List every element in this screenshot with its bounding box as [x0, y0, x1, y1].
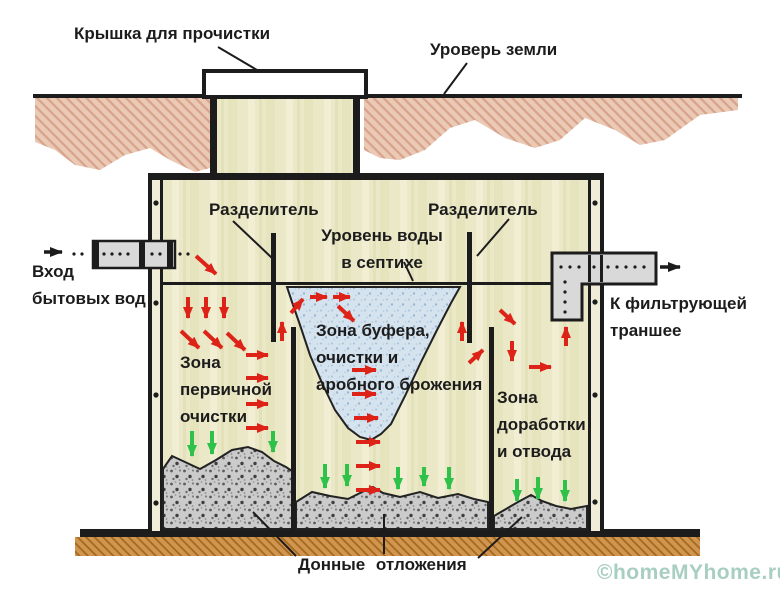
bottom-sediment-label: Донные отложения	[298, 551, 467, 578]
divider-label-left: Разделитель	[209, 196, 319, 223]
tank-right-wall-core	[591, 175, 600, 531]
lid-cover-label: Крышка для прочистки	[74, 20, 270, 47]
divider-baffle-left	[271, 233, 276, 342]
tank-top-wall	[148, 173, 604, 180]
inlet-label: Вход бытовых вод	[32, 258, 146, 312]
chamber-partition-right	[489, 327, 494, 530]
soil-layer-right	[364, 97, 738, 160]
shaft-left-wall	[210, 95, 217, 177]
outlet-label: К фильтрующей траншее	[610, 290, 747, 344]
septic-tank-diagram: Крышка для прочистки Уроверь земли Разде…	[0, 0, 780, 600]
chamber-partition-left	[291, 327, 296, 530]
tank-left-wall-core	[152, 175, 160, 531]
zone-final-label: Зона доработки и отвода	[497, 384, 586, 465]
zone-primary-label: Зона первичной очистки	[180, 349, 272, 430]
zone-buffer-label: Зона буфера, очистки и аробного брожения	[316, 317, 482, 398]
tank-left-wall-outer	[148, 173, 152, 533]
ground-surface-line-right	[364, 94, 742, 98]
tank-right-wall-inner	[588, 175, 591, 531]
divider-label-right: Разделитель	[428, 196, 538, 223]
water-level-label: Уровень воды в септихе	[316, 222, 448, 276]
ground-surface-line-left	[33, 94, 206, 98]
tank-bottom-wall	[80, 529, 700, 537]
water-surface-line	[163, 282, 588, 285]
ground-level-label: Уроверь земли	[430, 36, 557, 63]
soil-layer-left	[35, 97, 210, 172]
cleanout-lid	[204, 71, 366, 97]
site-watermark: ©homeMYhome.ru	[597, 561, 780, 585]
tank-right-wall-outer	[600, 173, 604, 533]
shaft-right-wall	[353, 95, 360, 177]
